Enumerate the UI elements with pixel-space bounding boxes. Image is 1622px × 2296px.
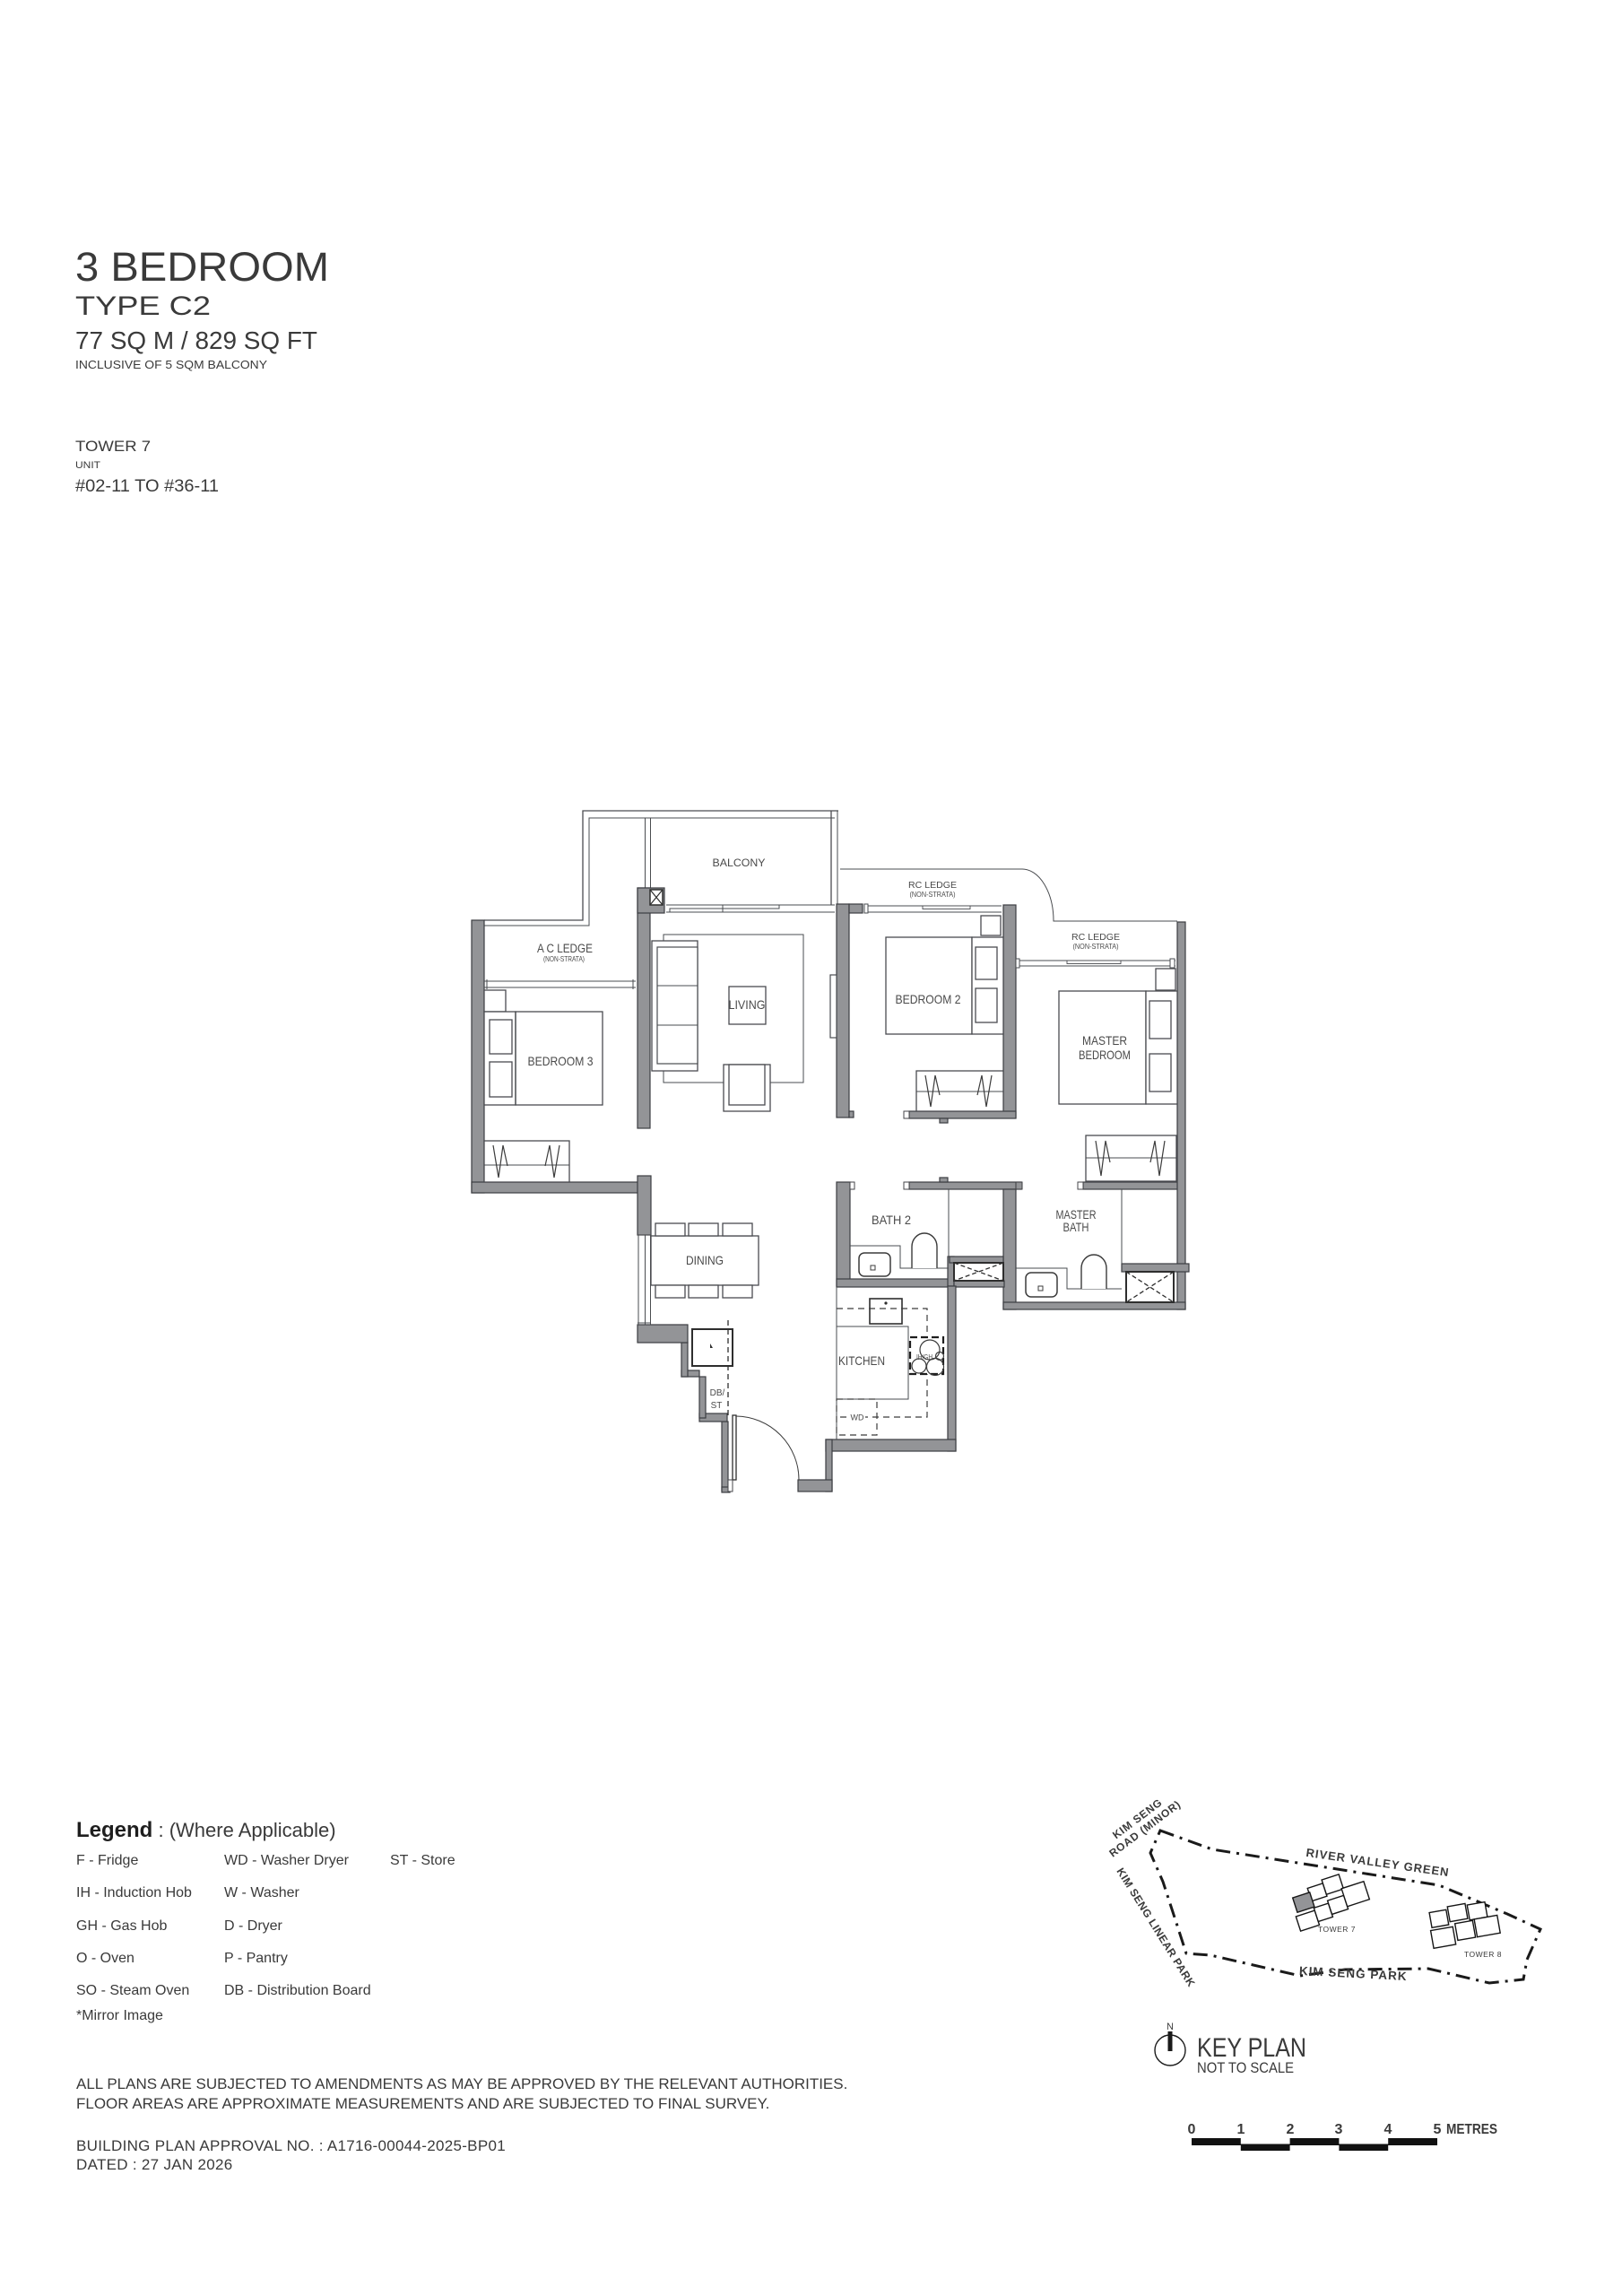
svg-text:2: 2 xyxy=(1287,2122,1295,2137)
svg-text:4: 4 xyxy=(1384,2122,1392,2137)
svg-text:DB - Distribution Board: DB - Distribution Board xyxy=(224,1983,371,1998)
svg-text:N: N xyxy=(1167,2022,1174,2032)
svg-text:WD: WD xyxy=(851,1413,864,1422)
svg-text:KITCHEN: KITCHEN xyxy=(838,1353,885,1368)
svg-text:BEDROOM: BEDROOM xyxy=(1079,1048,1131,1062)
svg-text:MASTER: MASTER xyxy=(1082,1033,1127,1048)
svg-text:ST: ST xyxy=(711,1401,723,1411)
svg-text:3 BEDROOM: 3 BEDROOM xyxy=(75,244,329,290)
svg-text:TOWER 8: TOWER 8 xyxy=(1464,1950,1502,1959)
svg-text:(NON-STRATA): (NON-STRATA) xyxy=(543,954,585,963)
svg-text:F - Fridge: F - Fridge xyxy=(76,1853,138,1868)
svg-text:IH - Induction Hob: IH - Induction Hob xyxy=(76,1885,192,1900)
svg-text:BEDROOM 3: BEDROOM 3 xyxy=(528,1054,594,1068)
svg-text:ALL PLANS ARE SUBJECTED TO AME: ALL PLANS ARE SUBJECTED TO AMENDMENTS AS… xyxy=(76,2075,847,2092)
svg-text:P - Pantry: P - Pantry xyxy=(224,1951,288,1966)
svg-text:TOWER 7: TOWER 7 xyxy=(1318,1925,1356,1934)
svg-text:SO - Steam Oven: SO - Steam Oven xyxy=(76,1983,189,1998)
svg-text:#02-11 TO #36-11: #02-11 TO #36-11 xyxy=(75,477,219,496)
svg-text:DINING: DINING xyxy=(686,1253,724,1267)
svg-text:METRES: METRES xyxy=(1446,2122,1497,2137)
svg-text:77 SQ M / 829 SQ FT: 77 SQ M / 829 SQ FT xyxy=(75,326,317,354)
svg-text:O - Oven: O - Oven xyxy=(76,1951,134,1966)
svg-text:W - Washer: W - Washer xyxy=(224,1885,300,1900)
svg-text:1: 1 xyxy=(1237,2122,1245,2137)
svg-text:Legend : (Where Applicable): Legend : (Where Applicable) xyxy=(76,1818,336,1842)
svg-text:BEDROOM 2: BEDROOM 2 xyxy=(896,992,961,1006)
svg-text:DB/: DB/ xyxy=(710,1388,725,1398)
svg-text:0: 0 xyxy=(1188,2122,1196,2137)
svg-text:3: 3 xyxy=(1335,2122,1343,2137)
svg-text:IH/GH: IH/GH xyxy=(916,1353,932,1361)
svg-text:DATED : 27 JAN 2026: DATED : 27 JAN 2026 xyxy=(76,2156,233,2173)
svg-text:5: 5 xyxy=(1434,2122,1442,2137)
svg-text:GH - Gas Hob: GH - Gas Hob xyxy=(76,1918,167,1934)
svg-text:NOT TO SCALE: NOT TO SCALE xyxy=(1197,2059,1294,2076)
svg-text:A C LEDGE: A C LEDGE xyxy=(537,942,593,955)
svg-text:BUILDING PLAN APPROVAL NO. : A: BUILDING PLAN APPROVAL NO. : A1716-00044… xyxy=(76,2137,506,2154)
svg-text:BATH 2: BATH 2 xyxy=(872,1213,911,1227)
svg-text:MASTER: MASTER xyxy=(1056,1208,1097,1222)
svg-text:*Mirror Image: *Mirror Image xyxy=(76,2008,163,2023)
svg-text:UNIT: UNIT xyxy=(75,460,100,471)
svg-text:INCLUSIVE OF 5 SQM BALCONY: INCLUSIVE OF 5 SQM BALCONY xyxy=(75,358,267,371)
svg-text:BALCONY: BALCONY xyxy=(713,858,766,869)
svg-text:TYPE C2: TYPE C2 xyxy=(75,291,211,321)
svg-text:LIVING: LIVING xyxy=(729,997,766,1012)
svg-text:(NON-STRATA): (NON-STRATA) xyxy=(1073,942,1119,951)
svg-text:(NON-STRATA): (NON-STRATA) xyxy=(910,890,956,899)
svg-text:BATH: BATH xyxy=(1063,1221,1089,1234)
svg-text:D - Dryer: D - Dryer xyxy=(224,1918,283,1934)
svg-text:FLOOR AREAS ARE APPROXIMATE ME: FLOOR AREAS ARE APPROXIMATE MEASUREMENTS… xyxy=(76,2095,769,2112)
svg-text:TOWER 7: TOWER 7 xyxy=(75,438,151,455)
svg-text:WD - Washer Dryer: WD - Washer Dryer xyxy=(224,1853,350,1868)
svg-text:ST - Store: ST - Store xyxy=(390,1853,455,1868)
